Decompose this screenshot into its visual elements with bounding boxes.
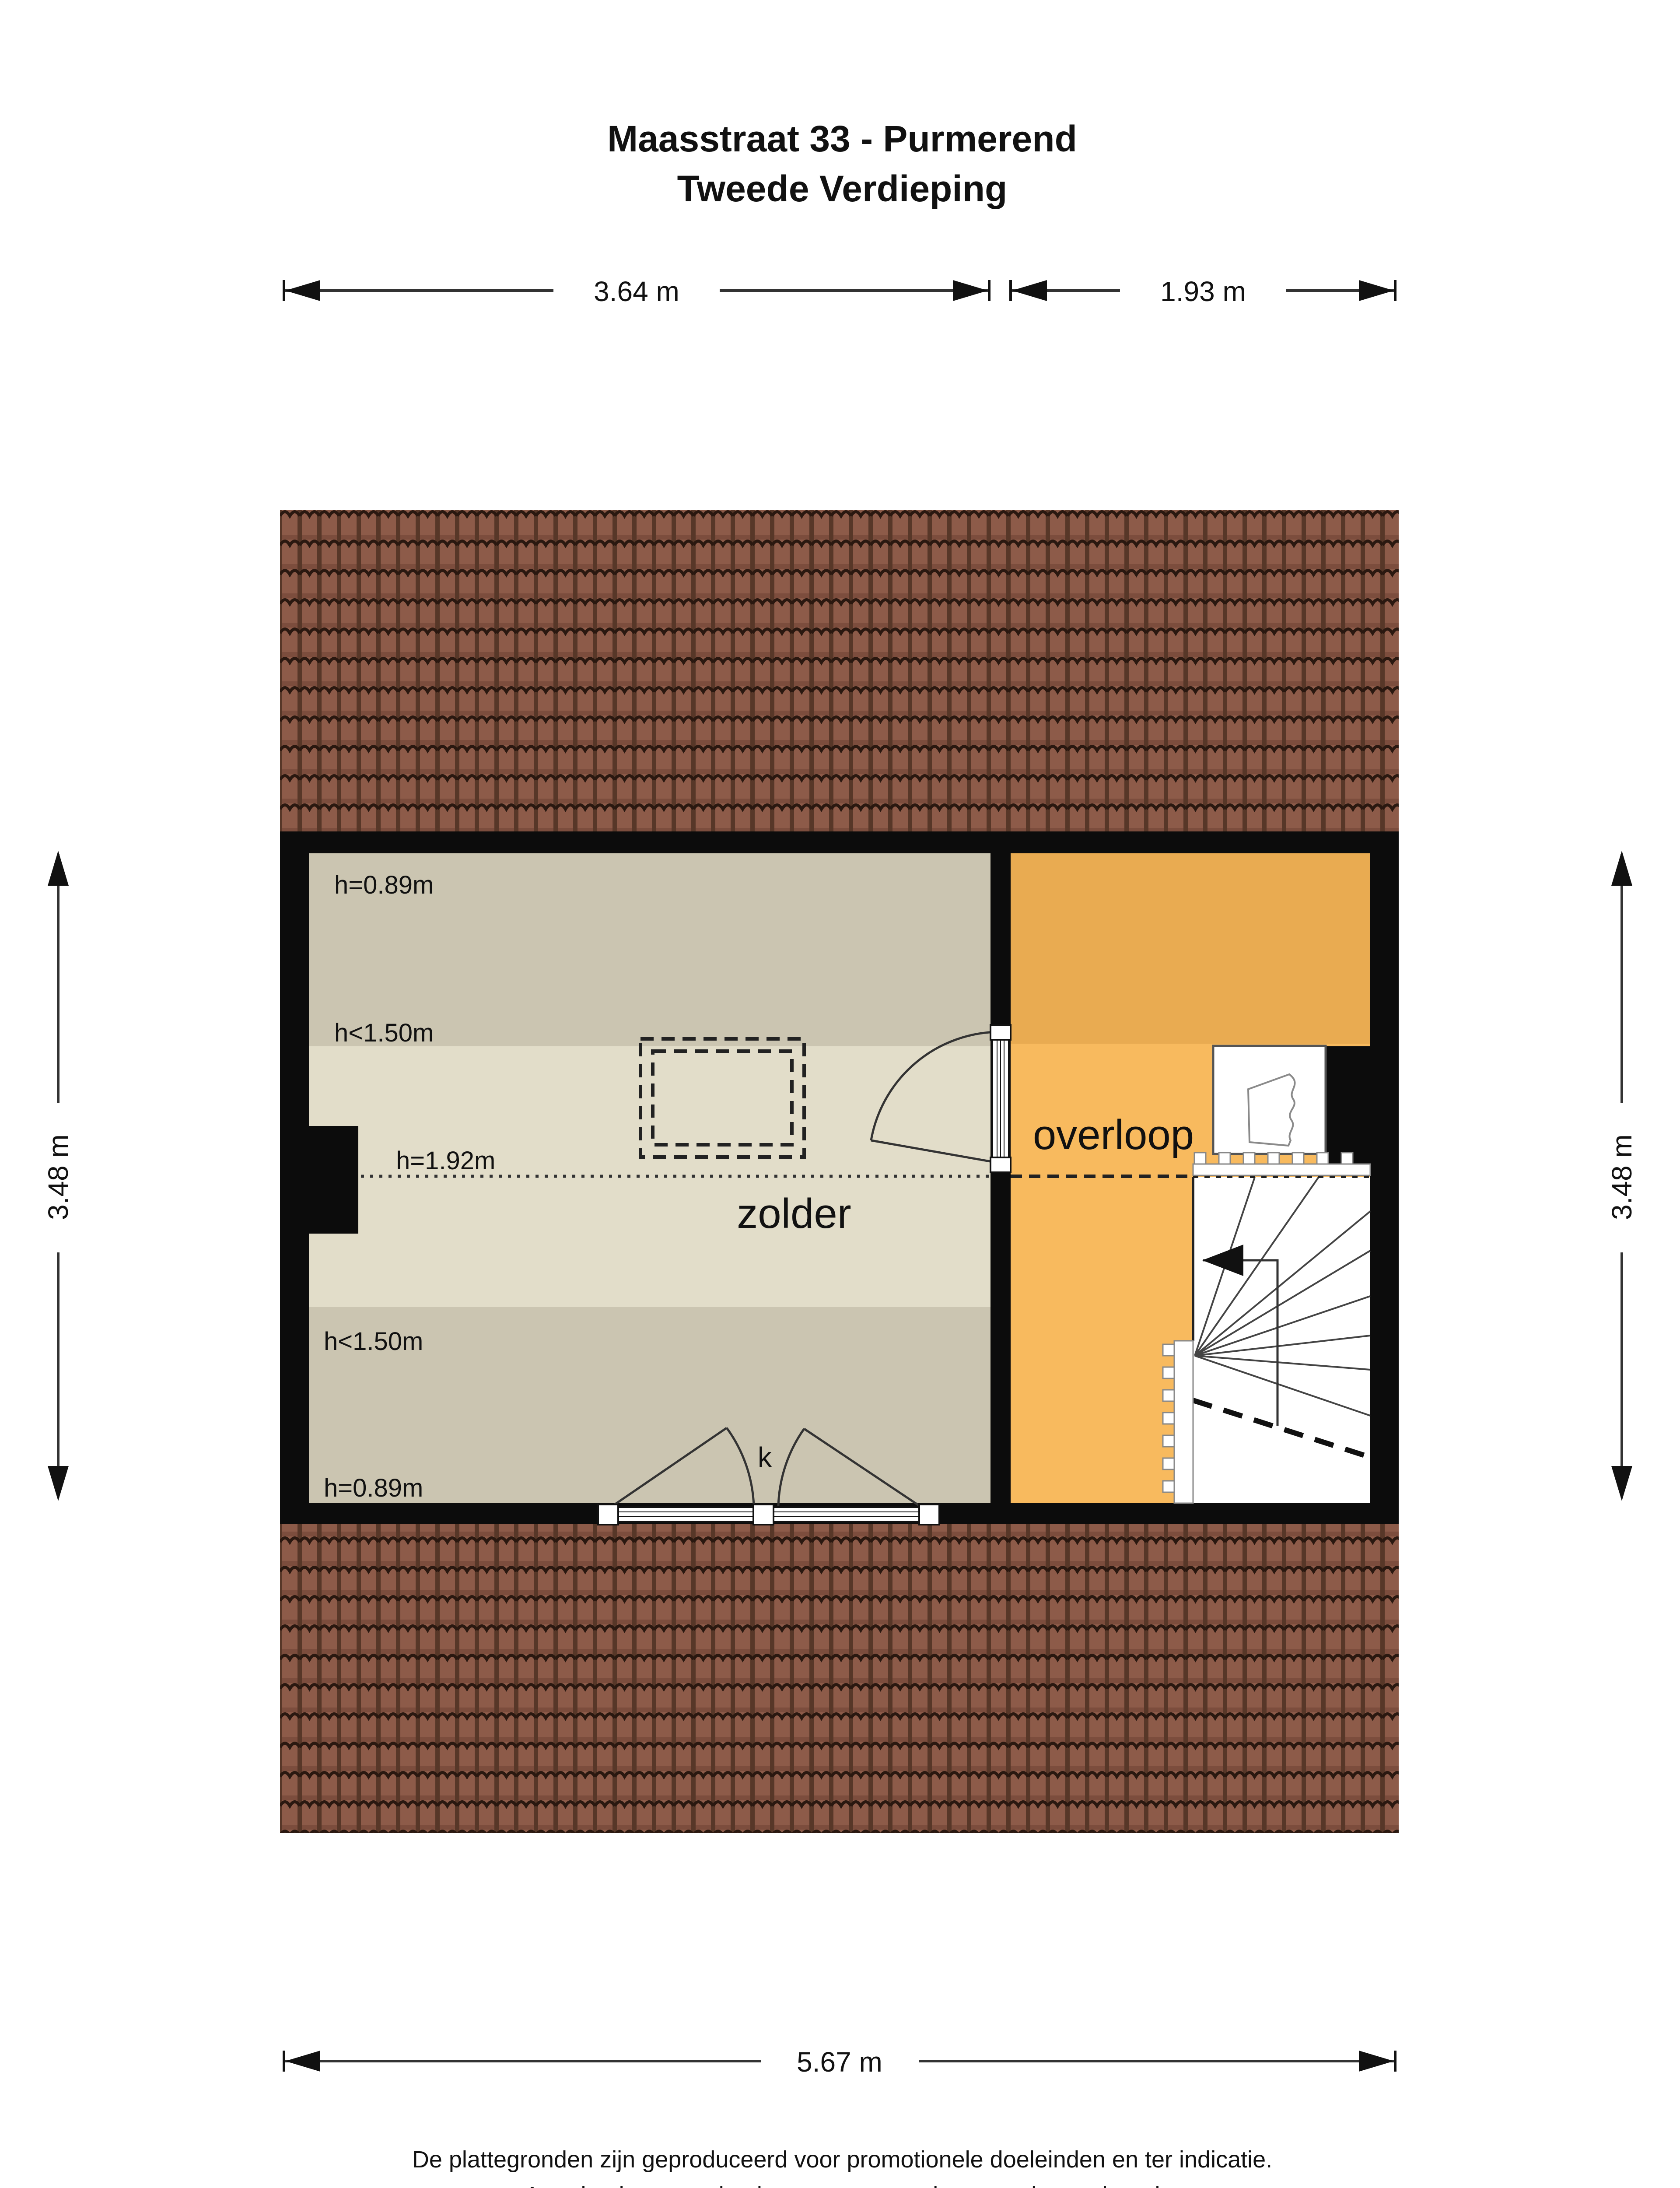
roof-top xyxy=(280,510,1399,833)
room-label-landing: overloop xyxy=(1033,1112,1194,1158)
window-post-left xyxy=(598,1504,618,1525)
room-label-attic: zolder xyxy=(737,1190,851,1237)
landing-low-headroom-top xyxy=(1011,853,1370,1044)
floorplan-drawing: Maasstraat 33 - Purmerend Tweede Verdiep… xyxy=(0,0,1680,2188)
height-label-attic-top-eaves: h=0.89m xyxy=(334,871,434,899)
dormer-window-label: k xyxy=(758,1441,772,1473)
floorplan-page: Maasstraat 33 - Purmerend Tweede Verdiep… xyxy=(0,0,1680,2188)
dimension-left: 3.48 m xyxy=(42,851,74,1501)
window-post-center xyxy=(753,1504,773,1525)
window-frame-right xyxy=(773,1507,919,1522)
room-attic xyxy=(309,853,990,1503)
dimension-top-attic-value: 3.64 m xyxy=(594,276,679,307)
dimension-right: 3.48 m xyxy=(1606,851,1638,1501)
dimension-top-attic: 3.64 m xyxy=(283,276,990,307)
footer-disclaimer-line1: De plattegronden zijn geproduceerd voor … xyxy=(412,2146,1272,2173)
dimension-top-landing-value: 1.93 m xyxy=(1160,276,1246,307)
dimension-right-value: 3.48 m xyxy=(1606,1134,1638,1220)
height-label-attic-bottom-eaves: h=0.89m xyxy=(324,1474,423,1502)
chimney-block xyxy=(309,1126,358,1234)
dimension-bottom: 5.67 m xyxy=(283,2046,1396,2078)
dimension-bottom-value: 5.67 m xyxy=(797,2046,882,2078)
roof-bottom xyxy=(280,1524,1399,1833)
footer-disclaimer-line2: Aan de plattegronden kunnen geen rechten… xyxy=(524,2182,1160,2188)
page-title-line2: Tweede Verdieping xyxy=(677,168,1008,209)
window-frame-left xyxy=(618,1507,753,1522)
door-post-top xyxy=(990,1025,1011,1040)
window-post-right xyxy=(919,1504,939,1525)
page-title-line1: Maasstraat 33 - Purmerend xyxy=(607,118,1077,159)
door-post-bottom xyxy=(990,1157,1011,1172)
boiler-cupboard xyxy=(1213,1046,1326,1154)
height-label-attic-ridge: h=1.92m xyxy=(396,1147,495,1175)
height-label-attic-bottom-150: h<1.50m xyxy=(324,1327,423,1356)
dimension-left-value: 3.48 m xyxy=(42,1134,74,1220)
height-label-attic-top-150: h<1.50m xyxy=(334,1019,434,1047)
dimension-top-landing: 1.93 m xyxy=(1009,276,1396,307)
